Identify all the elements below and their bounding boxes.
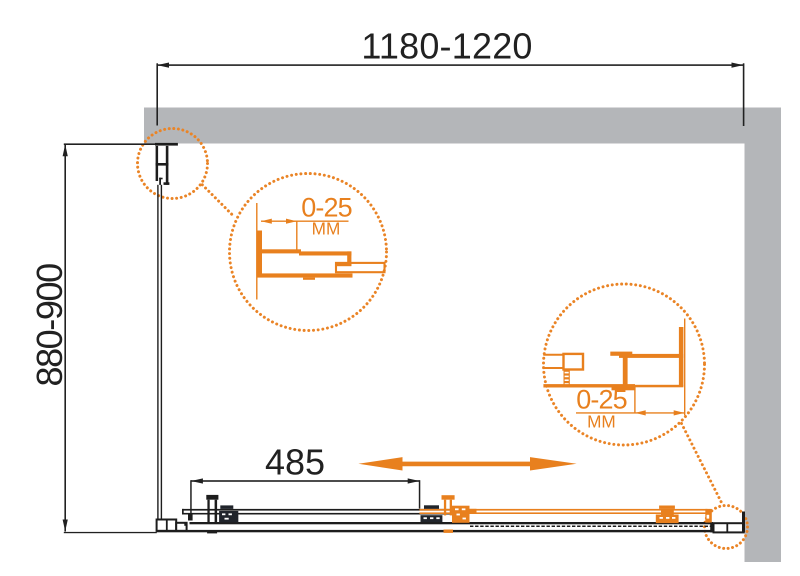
svg-text:485: 485 — [265, 442, 325, 483]
svg-text:MM: MM — [587, 411, 616, 431]
svg-text:1180-1220: 1180-1220 — [361, 25, 532, 66]
svg-text:MM: MM — [312, 219, 341, 239]
svg-text:880-900: 880-900 — [29, 264, 70, 387]
svg-text:0-25: 0-25 — [576, 384, 626, 414]
